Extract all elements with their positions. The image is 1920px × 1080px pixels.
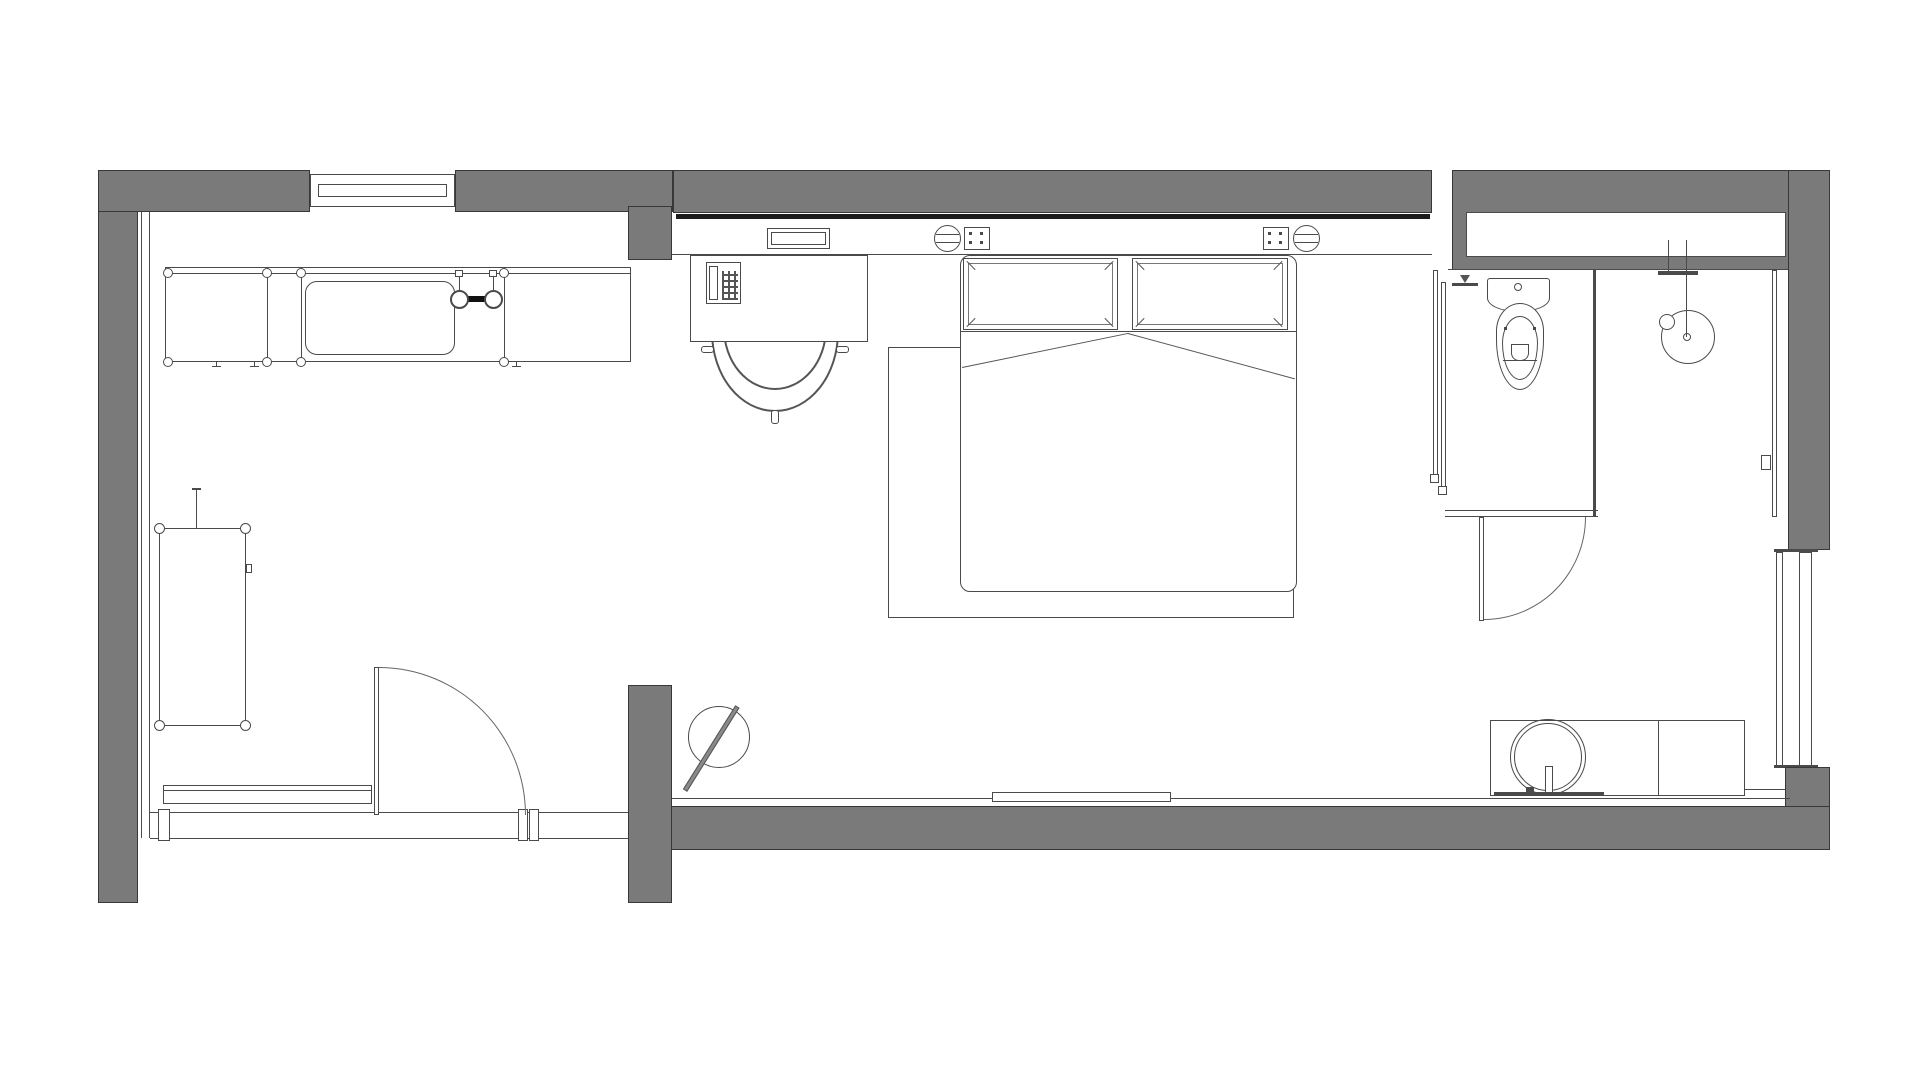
shower-valve-cone — [1460, 275, 1470, 283]
shower-head-center — [1683, 333, 1691, 341]
glass-panel-foot-1 — [1430, 474, 1439, 483]
threshold-line-bottom — [150, 838, 628, 839]
wardrobe-corner — [240, 523, 251, 534]
wall-panel-inner — [771, 232, 826, 245]
coat-stand-top-tick — [192, 488, 201, 490]
cabinet-handle — [516, 362, 517, 367]
switch-panel-left — [964, 227, 990, 250]
wardrobe-cabinet — [159, 528, 246, 726]
door-strike-block-2 — [529, 809, 539, 841]
toilet-tank-button — [1514, 283, 1522, 291]
chair-stem — [771, 410, 779, 424]
shower-valve-bar — [1452, 283, 1478, 286]
counter-post — [499, 268, 509, 278]
wall-light-right-line1 — [1295, 234, 1318, 235]
chair-armrest-left — [701, 346, 714, 353]
counter-post — [499, 357, 509, 367]
side-window-cap-top — [1774, 549, 1818, 552]
bath-bottom-line-1 — [1445, 510, 1598, 511]
coat-stand-stem — [196, 490, 197, 528]
wall-right-upper — [1788, 170, 1830, 550]
faucet-handle-right — [489, 270, 497, 277]
counter-post — [296, 268, 306, 278]
wall-left-inner-line-1 — [141, 210, 142, 838]
switch-panel-right — [1263, 227, 1289, 250]
telephone-keypad — [722, 271, 738, 300]
shower-bar — [1658, 271, 1698, 275]
wall-stub-upper — [628, 206, 672, 260]
shower-pipe-1 — [1668, 240, 1669, 272]
entry-bench — [163, 785, 372, 804]
closet-niche — [1466, 212, 1786, 257]
telephone-handset — [709, 266, 718, 300]
wall-left — [98, 170, 138, 903]
bathroom-door-swing-arc — [1484, 517, 1586, 620]
wardrobe-corner — [154, 720, 165, 731]
switch-dot — [969, 232, 972, 235]
shower-partition — [1593, 270, 1596, 517]
side-window-pane-inner — [1776, 552, 1783, 766]
switch-dot — [980, 241, 983, 244]
toilet-flush — [1511, 344, 1529, 361]
pillow-right-inner — [1137, 263, 1283, 325]
glass-door-knob — [1761, 455, 1771, 470]
kitchen-sink — [305, 281, 455, 355]
counter-post — [262, 357, 272, 367]
counter-post — [262, 268, 272, 278]
wall-light-right — [1293, 225, 1320, 252]
wall-left-inner-line-2 — [149, 210, 150, 838]
side-window-pane-outer — [1799, 552, 1812, 766]
basin-drain-box — [1526, 787, 1534, 793]
floor-step — [992, 792, 1171, 802]
shower-pipe-2 — [1686, 240, 1687, 272]
kitchen-faucet-knob-right — [484, 290, 503, 309]
sliding-glass-panel-2 — [1441, 282, 1446, 492]
counter-post — [163, 268, 173, 278]
vanity-wall-link — [1745, 789, 1785, 790]
threshold-jamb-left — [158, 809, 170, 841]
faucet-handle-left — [455, 270, 463, 277]
wall-light-left-line1 — [936, 234, 959, 235]
bathroom-top-edge — [1448, 269, 1788, 270]
kitchen-counter-divider-1 — [267, 267, 268, 362]
shower-head-joint — [1659, 314, 1675, 330]
curtain-track — [676, 214, 1430, 219]
wall-light-left-line2 — [936, 242, 959, 243]
floor-plan — [0, 0, 1920, 1080]
entry-door-swing-arc — [379, 667, 526, 815]
wall-top-bedroom — [673, 170, 1432, 213]
kitchen-counter-divider-2 — [301, 267, 302, 362]
counter-post — [296, 357, 306, 367]
toilet-bowl-line — [1503, 360, 1537, 361]
chair-armrest-right — [836, 346, 849, 353]
wall-light-left — [934, 225, 961, 252]
switch-dot — [1279, 241, 1282, 244]
pillow-left-inner — [968, 263, 1113, 325]
kitchen-counter-rail — [165, 273, 631, 274]
wardrobe-corner — [154, 523, 165, 534]
switch-dot — [1279, 232, 1282, 235]
switch-dot — [980, 232, 983, 235]
vanity-divider — [1658, 720, 1659, 796]
basin-faucet — [1545, 766, 1553, 794]
glass-panel-foot-2 — [1438, 486, 1447, 495]
bathroom-glass-right — [1772, 270, 1777, 517]
top-window-sash — [318, 184, 447, 197]
entry-bench-line — [163, 790, 372, 791]
floor-line — [672, 798, 1790, 799]
cabinet-handle — [254, 362, 255, 367]
switch-dot — [969, 241, 972, 244]
wall-bottom — [628, 806, 1830, 850]
switch-dot — [1268, 232, 1271, 235]
kitchen-faucet-knob-left — [450, 290, 469, 309]
wardrobe-corner — [240, 720, 251, 731]
wall-top-a — [98, 170, 310, 212]
switch-dot — [1268, 241, 1271, 244]
wall-light-right-line2 — [1295, 242, 1318, 243]
cabinet-handle — [216, 362, 217, 367]
basin-plinth — [1494, 792, 1604, 795]
wardrobe-handle — [246, 564, 252, 573]
toilet-dot — [1533, 327, 1536, 330]
wall-stub-column — [628, 685, 672, 903]
kitchen-counter-divider-3 — [504, 267, 505, 362]
toilet-dot — [1504, 327, 1507, 330]
counter-post — [163, 357, 173, 367]
sliding-glass-panel-1 — [1433, 270, 1438, 480]
